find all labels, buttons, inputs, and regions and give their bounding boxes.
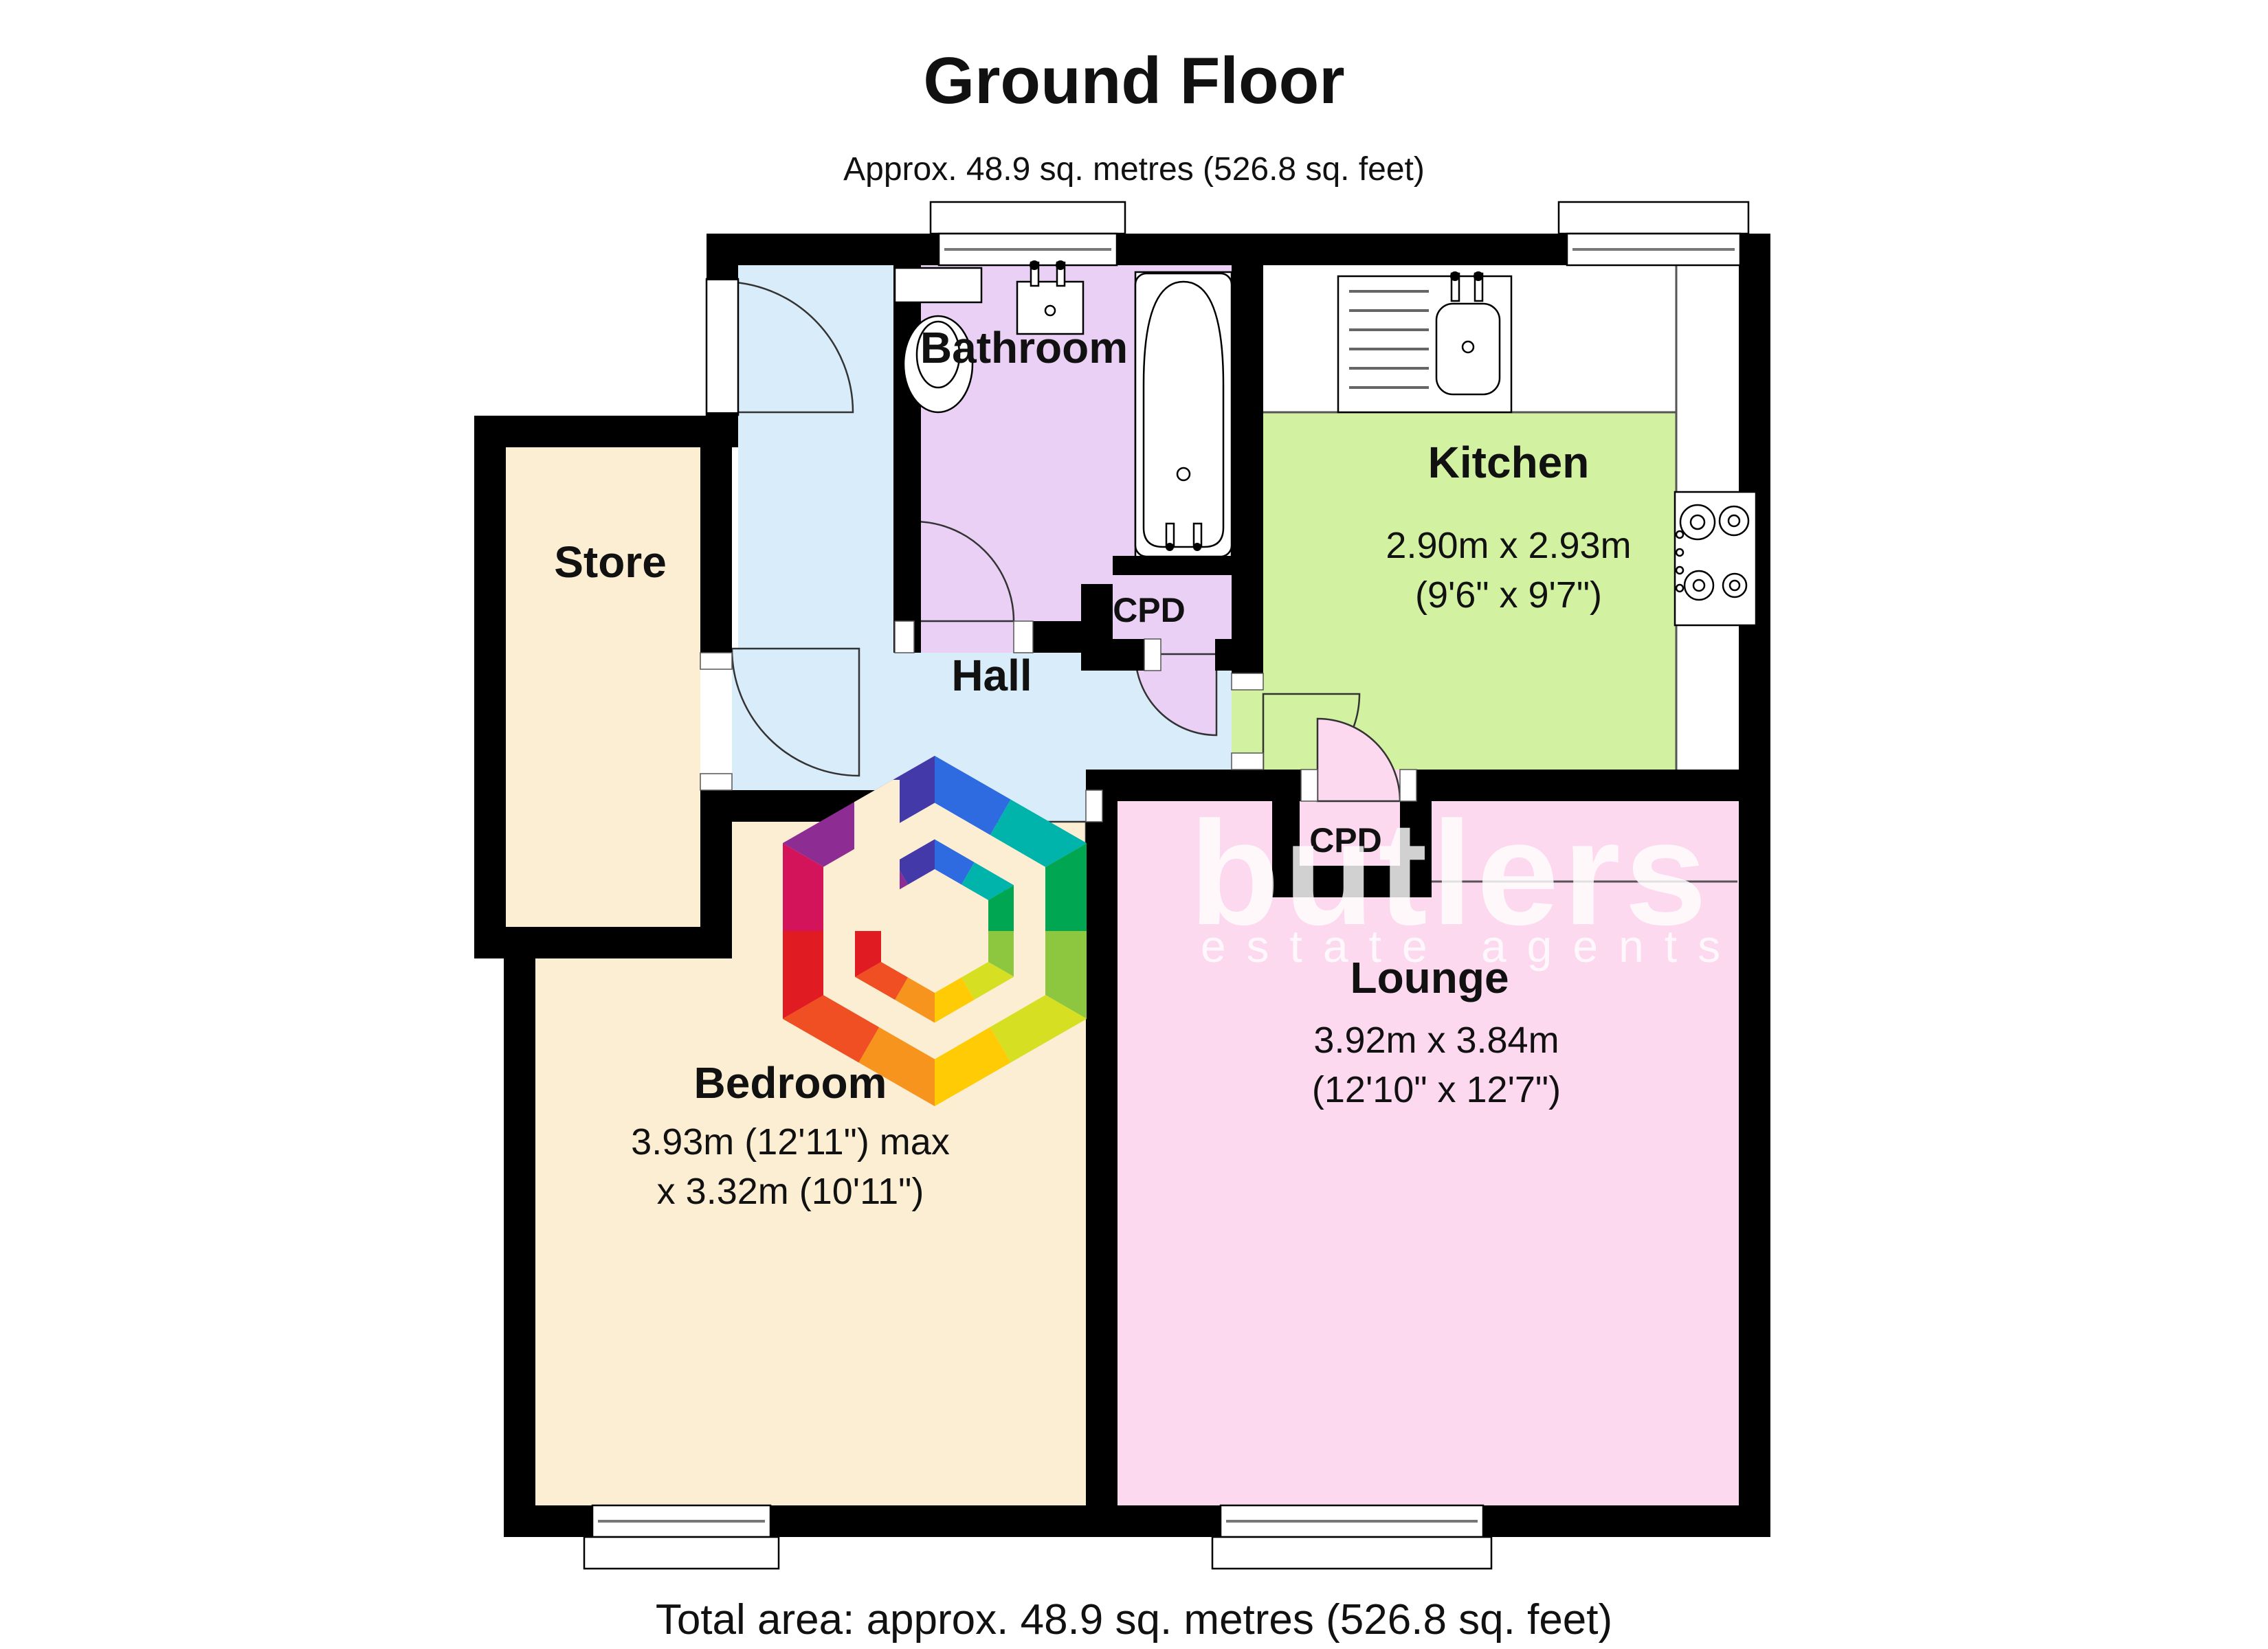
lounge-dimensions-imperial: (12'10" x 12'7") (1312, 1069, 1561, 1110)
kitchen-window (1559, 202, 1748, 265)
floor-plan-page: Ground Floor Approx. 48.9 sq. metres (52… (0, 0, 2268, 1649)
wall-segment (1081, 639, 1144, 671)
bathroom-door-opening-floor (914, 621, 1014, 653)
wall-segment (504, 958, 535, 1505)
bedroom-floor-left (535, 958, 732, 1505)
wall-segment (1232, 265, 1263, 690)
bedroom-label: Bedroom (694, 1058, 887, 1108)
bedroom-window (584, 1505, 779, 1569)
kitchen-dimensions-metric: 2.90m x 2.93m (1386, 525, 1631, 566)
kitchen-sink-icon (1338, 271, 1511, 412)
wall-segment (474, 416, 506, 958)
wall-segment (700, 416, 732, 653)
store-label: Store (554, 537, 667, 587)
door-jamb (1232, 753, 1263, 770)
bathroom-window (931, 202, 1125, 265)
wall-segment (474, 416, 738, 447)
door-jamb (1086, 790, 1102, 822)
bathtub-icon (1135, 273, 1232, 557)
logo-stem (854, 780, 900, 931)
wall-segment (1215, 639, 1232, 671)
hall-label: Hall (951, 651, 1032, 700)
hob-icon (1675, 492, 1756, 625)
door-jamb (1232, 673, 1263, 690)
page-title: Ground Floor (923, 44, 1344, 117)
cupboard-top-label: CPD (1113, 591, 1186, 629)
bedroom-dimensions-line2: x 3.32m (10'11") (657, 1171, 924, 1212)
floor-plan-svg: Ground Floor Approx. 48.9 sq. metres (52… (0, 0, 2268, 1649)
wall-segment (1113, 556, 1232, 575)
page-subtitle: Approx. 48.9 sq. metres (526.8 sq. feet) (843, 151, 1425, 188)
door-jamb (1014, 621, 1033, 653)
door-jamb (700, 653, 732, 669)
wall-segment (1086, 770, 1118, 1505)
wall-segment (893, 265, 921, 653)
door-jamb (895, 621, 914, 653)
bathroom-label: Bathroom (920, 323, 1128, 372)
kitchen-label: Kitchen (1428, 438, 1590, 487)
lounge-dimensions-metric: 3.92m x 3.84m (1313, 1020, 1559, 1061)
lounge-window (1212, 1505, 1491, 1569)
watermark-tagline-text: estate agents (1201, 921, 1741, 972)
door-jamb (1144, 639, 1161, 671)
wall-segment (474, 927, 732, 958)
wall-segment (1739, 234, 1770, 1537)
door-jamb (700, 774, 732, 790)
front-door-leaf (707, 279, 738, 415)
bedroom-dimensions-line1: 3.93m (12'11") max (631, 1121, 950, 1163)
wall-segment (707, 234, 738, 280)
store-floor (506, 447, 700, 927)
total-area-text: Total area: approx. 48.9 sq. metres (526… (656, 1596, 1612, 1644)
kitchen-dimensions-imperial: (9'6" x 9'7") (1415, 574, 1602, 616)
